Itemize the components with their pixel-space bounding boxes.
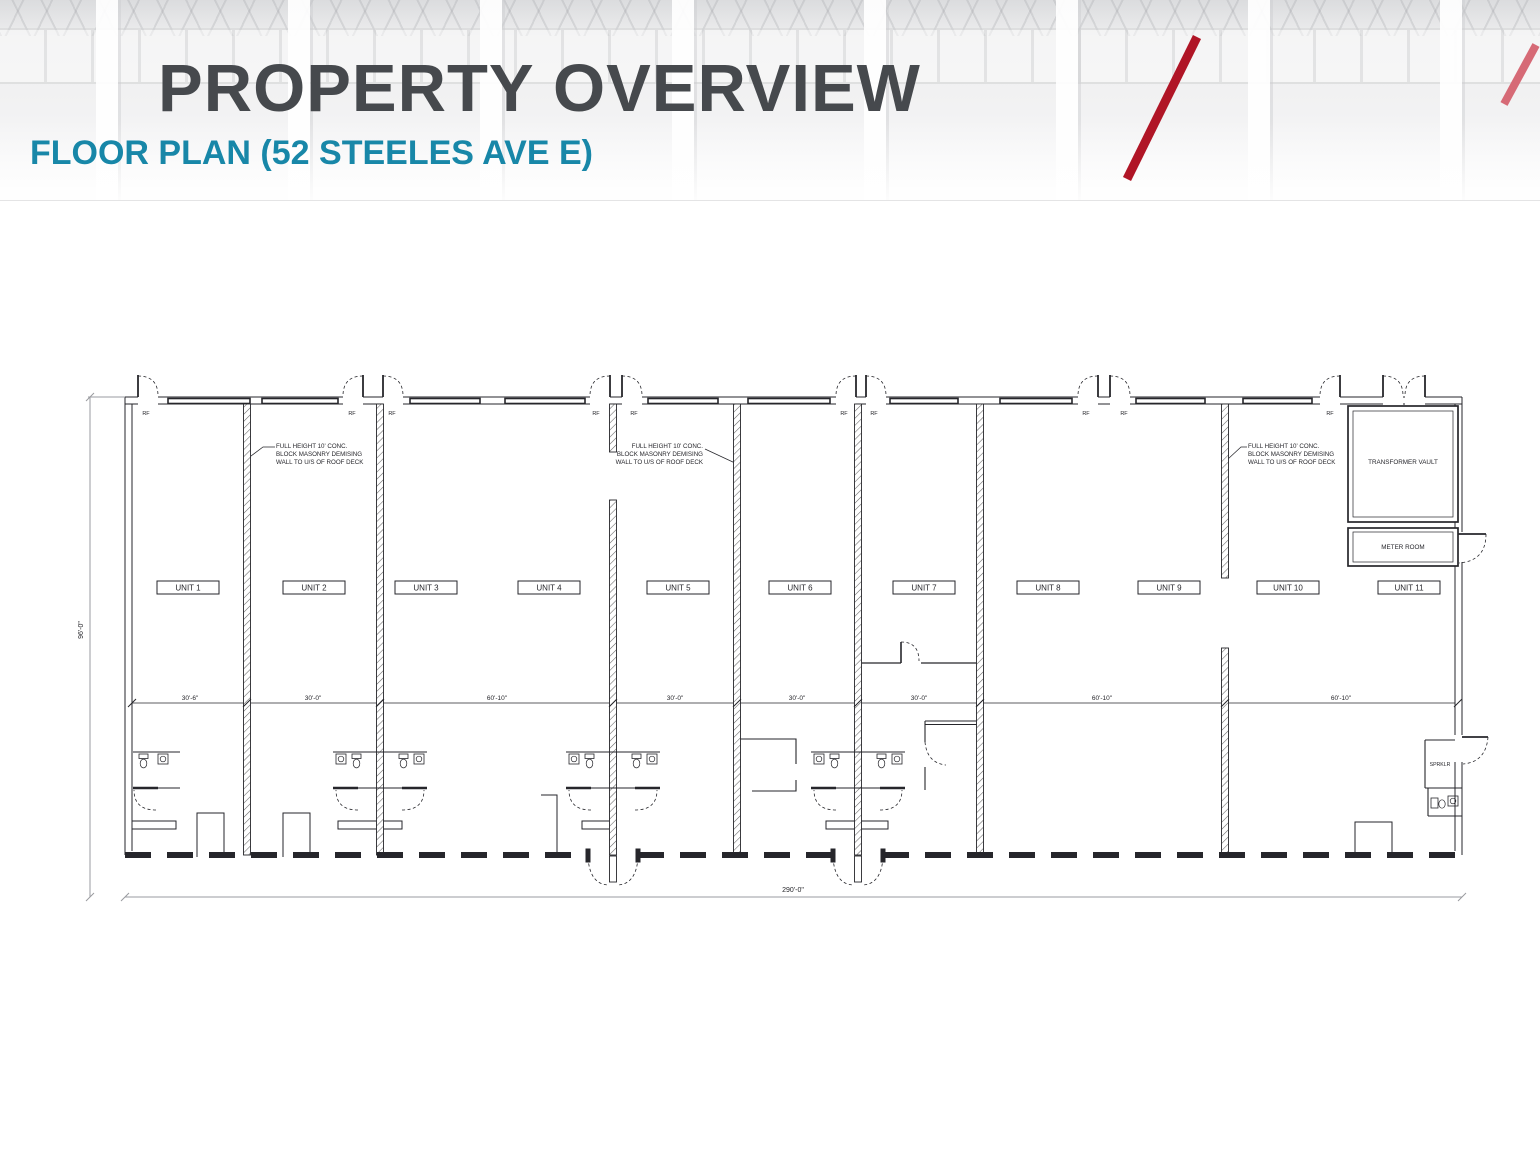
sink-fixture <box>416 756 422 762</box>
unit-label: UNIT 3 <box>413 584 439 593</box>
door-swing <box>1110 376 1130 396</box>
storefront-window <box>262 399 338 404</box>
overall-width-dimension: 290'-0" <box>782 887 804 894</box>
sink-fixture <box>571 756 577 762</box>
door-swing <box>901 642 919 661</box>
overall-dimension-lines <box>86 393 1466 901</box>
bay-dimension: 60'-10" <box>1092 695 1113 702</box>
toilet-fixture <box>1439 800 1445 808</box>
toilet-fixture <box>878 759 885 768</box>
door-swing <box>1383 376 1403 396</box>
accent-diagonal-dark <box>1127 37 1197 179</box>
masonry-note: WALL TO U/S OF ROOF DECK <box>616 459 704 466</box>
door-swing <box>925 742 946 765</box>
toilet-fixture <box>632 754 641 759</box>
demising-wall <box>1222 404 1229 578</box>
storefront-window <box>1000 399 1072 404</box>
door-tag: RF <box>870 411 878 417</box>
door-tag: RF <box>592 411 600 417</box>
toilet-fixture <box>352 754 361 759</box>
toilet-fixture <box>400 759 407 768</box>
sink-fixture <box>414 754 424 764</box>
door-tag: RF <box>1120 411 1128 417</box>
door-swing <box>343 376 363 396</box>
masonry-note: BLOCK MASONRY DEMISING <box>617 451 703 458</box>
masonry-note: WALL TO U/S OF ROOF DECK <box>1248 459 1336 466</box>
door-tag: RF <box>630 411 638 417</box>
storefront-window <box>1136 399 1205 404</box>
bay-dimension: 60'-10" <box>487 695 508 702</box>
storefront-window <box>410 399 480 404</box>
accent-diagonal-light <box>1504 45 1536 104</box>
bay-dimension: 30'-0" <box>911 695 928 702</box>
plan-linework: TRANSFORMER VAULT METER ROOM SPRKLR UNIT… <box>78 375 1488 901</box>
demising-wall <box>610 404 617 452</box>
door-swing <box>1459 534 1486 563</box>
bay-dimension: 30'-0" <box>305 695 322 702</box>
unit-label: UNIT 8 <box>1035 584 1061 593</box>
door-swing <box>1078 376 1098 396</box>
office-partition <box>925 721 977 790</box>
counter <box>132 821 176 829</box>
counter <box>338 821 402 829</box>
bay-dimension: 60'-10" <box>1331 695 1352 702</box>
door-tag: RF <box>388 411 396 417</box>
toilet-fixture <box>140 759 147 768</box>
sink-fixture <box>647 754 657 764</box>
unit-label: UNIT 4 <box>536 584 562 593</box>
demising-wall <box>610 500 617 855</box>
sink-fixture <box>336 754 346 764</box>
unit-label: UNIT 11 <box>1394 584 1424 593</box>
plan-generated: UNIT 1UNIT 2UNIT 3UNIT 4UNIT 5UNIT 6UNIT… <box>78 375 1462 894</box>
annotation-leaders <box>247 447 1247 463</box>
wall-stub <box>610 856 617 882</box>
door-swing <box>1463 737 1488 764</box>
overall-depth-dimension: 96'-0" <box>78 621 85 639</box>
toilet-fixture <box>399 754 408 759</box>
sink-fixture <box>814 754 824 764</box>
office-partition <box>740 739 796 791</box>
sink-fixture <box>569 754 579 764</box>
toilet-fixture <box>830 754 839 759</box>
transformer-vault-label: TRANSFORMER VAULT <box>1368 459 1438 466</box>
toilet-fixture <box>586 759 593 768</box>
door-swing <box>383 376 403 396</box>
door-swing <box>134 790 156 810</box>
toilet-fixture <box>139 754 148 759</box>
sink-fixture <box>649 756 655 762</box>
slide-page: PROPERTY OVERVIEW FLOOR PLAN (52 STEELES… <box>0 0 1540 1155</box>
storefront-window <box>168 399 250 404</box>
door-tag: RF <box>1326 411 1334 417</box>
storefront-window <box>1243 399 1312 404</box>
sink-fixture <box>160 756 166 762</box>
door-swing <box>836 376 856 396</box>
bay-dimension: 30'-0" <box>667 695 684 702</box>
demising-wall <box>1222 648 1229 855</box>
door-tag: RF <box>142 411 150 417</box>
bay-dimension: 30'-0" <box>789 695 806 702</box>
sprinkler-room <box>1425 740 1462 816</box>
sink-fixture <box>892 754 902 764</box>
unit-label: UNIT 2 <box>301 584 327 593</box>
unit-label: UNIT 5 <box>665 584 691 593</box>
door-swing <box>590 376 610 396</box>
masonry-note: FULL HEIGHT 10' CONC. <box>632 443 704 450</box>
counter <box>582 821 612 829</box>
storefront-window <box>648 399 718 404</box>
unit-label: UNIT 1 <box>175 584 201 593</box>
sink-fixture <box>816 756 822 762</box>
door-swing <box>1320 376 1340 396</box>
storefront-window <box>505 399 585 404</box>
masonry-note: WALL TO U/S OF ROOF DECK <box>276 459 364 466</box>
sink-fixture <box>338 756 344 762</box>
toilet-fixture <box>831 759 838 768</box>
storefront-window <box>748 399 830 404</box>
toilet-fixture <box>353 759 360 768</box>
sink-fixture <box>1448 796 1458 806</box>
unit-label: UNIT 10 <box>1273 584 1303 593</box>
door-swing <box>866 376 886 396</box>
sink-fixture <box>158 754 168 764</box>
unit-label: UNIT 6 <box>787 584 813 593</box>
masonry-note: FULL HEIGHT 10' CONC. <box>1248 443 1320 450</box>
meter-room-label: METER ROOM <box>1381 544 1424 551</box>
floor-plan-drawing: TRANSFORMER VAULT METER ROOM SPRKLR UNIT… <box>0 0 1540 1155</box>
masonry-note: FULL HEIGHT 10' CONC. <box>276 443 348 450</box>
door-swing <box>622 376 642 396</box>
masonry-note: BLOCK MASONRY DEMISING <box>1248 451 1334 458</box>
door-tag: RF <box>1082 411 1090 417</box>
masonry-note: BLOCK MASONRY DEMISING <box>276 451 362 458</box>
left-wall <box>125 397 132 855</box>
door-tag: RF <box>840 411 848 417</box>
bay-dimension: 30'-6" <box>182 695 199 702</box>
storefront-window <box>890 399 958 404</box>
demising-wall <box>377 404 384 855</box>
sprinkler-room-label: SPRKLR <box>1430 762 1451 768</box>
demising-wall <box>855 404 862 855</box>
demising-wall <box>977 404 984 855</box>
demising-wall <box>244 404 251 855</box>
toilet-fixture <box>877 754 886 759</box>
toilet-fixture <box>633 759 640 768</box>
door-tag: RF <box>348 411 356 417</box>
toilet-fixture <box>585 754 594 759</box>
demising-wall <box>734 404 741 855</box>
toilet-fixture <box>1431 798 1438 808</box>
unit-label: UNIT 9 <box>1156 584 1182 593</box>
door-swing <box>138 376 158 396</box>
unit-label: UNIT 7 <box>911 584 937 593</box>
door-swing <box>1405 376 1425 396</box>
wall-stub <box>855 856 862 882</box>
sink-fixture <box>894 756 900 762</box>
